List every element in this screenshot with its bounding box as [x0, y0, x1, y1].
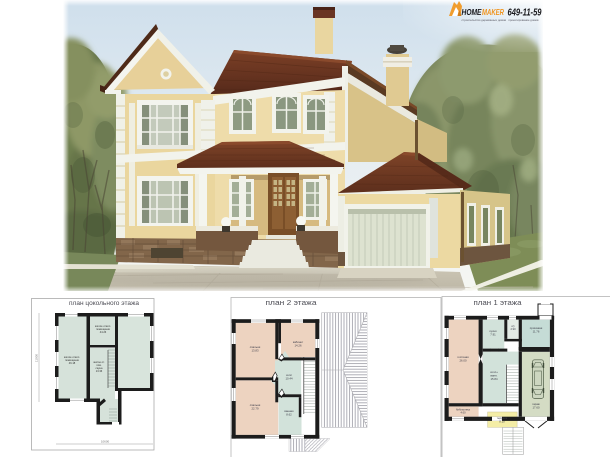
svg-text:план цокольного этажа: план цокольного этажа [69, 300, 139, 307]
svg-text:HOME: HOME [462, 8, 483, 17]
svg-text:план 1 этажа: план 1 этажа [474, 298, 522, 307]
svg-text:план 2 этажа: план 2 этажа [266, 298, 318, 307]
svg-text:649-11-59: 649-11-59 [508, 7, 542, 18]
svg-text:строительство деревянных домов: строительство деревянных домов проектиро… [462, 18, 539, 22]
svg-text:10600: 10600 [101, 440, 110, 444]
svg-text:холл+ванн.15.84: холл+ванн.15.84 [490, 370, 498, 381]
svg-text:холл10.44: холл10.44 [286, 373, 293, 380]
svg-text:MAKER: MAKER [482, 8, 504, 17]
svg-text:11000: 11000 [35, 354, 39, 362]
svg-text:гараж17.60: гараж17.60 [532, 402, 540, 409]
